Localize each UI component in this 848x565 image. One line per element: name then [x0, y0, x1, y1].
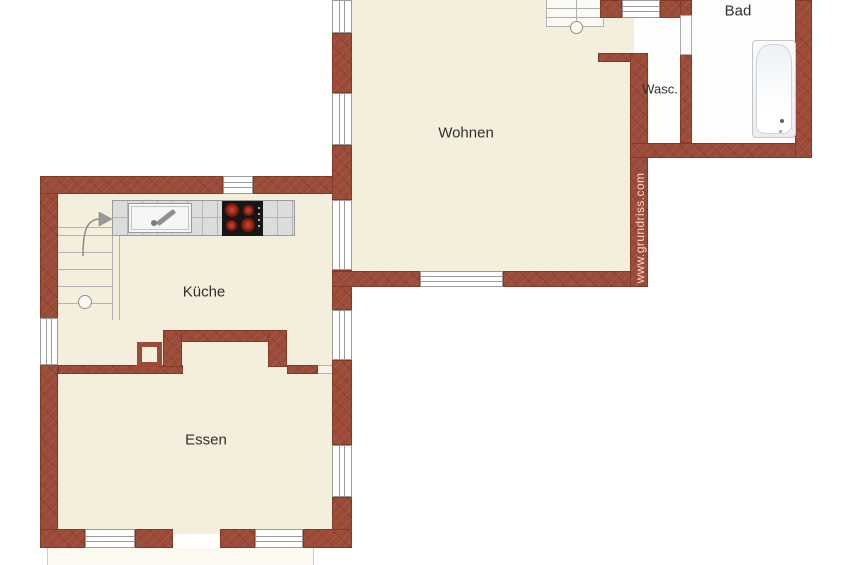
window-spine-1	[332, 0, 352, 33]
cooktop-knob	[258, 213, 260, 215]
wall-south-1	[40, 529, 85, 548]
window-top-landing	[622, 0, 660, 18]
wall-kueche-top-left	[40, 176, 223, 194]
wall-essen-top-right	[287, 365, 318, 374]
floor-plan: Wohnen Küche Essen Bad Wasc. www.grundri…	[0, 0, 848, 565]
bathtub-drain	[780, 119, 784, 123]
wall-spine-4	[332, 360, 352, 445]
wall-wohnen-bottom-left	[332, 271, 420, 287]
watermark-text: www.grundriss.com	[633, 173, 647, 284]
room-label-wasc: Wasc.	[642, 83, 678, 96]
window-wohnen-bottom	[420, 271, 503, 287]
terrace-outline	[47, 548, 314, 565]
main-staircase-post	[570, 21, 583, 34]
wall-south-4	[303, 529, 352, 548]
room-label-essen: Essen	[185, 433, 227, 448]
wall-spine-1	[332, 33, 352, 93]
window-spine-3	[332, 200, 352, 270]
kitchen-sink	[128, 203, 192, 233]
room-label-wohnen: Wohnen	[438, 126, 494, 141]
cooktop-knob	[258, 207, 260, 209]
burner	[226, 220, 237, 231]
wall-spine-2	[332, 145, 352, 200]
door-panel-bad	[680, 15, 692, 55]
faucet-base	[151, 220, 157, 226]
window-spine-4	[332, 310, 352, 360]
cooktop-knob	[258, 225, 260, 227]
faucet-icon	[156, 209, 176, 226]
wall-alcove-right	[268, 330, 287, 367]
room-label-kueche: Küche	[183, 285, 226, 300]
room-label-bad: Bad	[725, 4, 752, 19]
window-spine-5	[332, 445, 352, 497]
window-spine-2	[332, 93, 352, 145]
window-south-1	[85, 529, 135, 548]
burner	[225, 203, 239, 217]
bathtub	[752, 40, 796, 138]
cooktop	[222, 201, 263, 236]
burner	[241, 218, 255, 232]
wall-south-2	[135, 529, 173, 548]
wall-wasc-top	[598, 53, 634, 62]
window-kueche-top	[223, 176, 253, 194]
chimney	[137, 342, 162, 367]
burner	[243, 205, 254, 216]
wall-bad-bottom	[630, 143, 812, 158]
cooktop-knob	[258, 219, 260, 221]
door-opening-essen	[318, 365, 332, 374]
wall-east-outer	[795, 0, 812, 158]
bathtub-overflow	[779, 130, 782, 133]
window-south-2	[255, 529, 303, 548]
wall-top-a	[600, 0, 622, 18]
wall-wohnen-bottom-right	[503, 271, 648, 287]
stair-direction-arrow-icon	[76, 206, 114, 258]
wall-south-3	[220, 529, 255, 548]
kitchen-staircase-post	[78, 295, 92, 309]
wall-alcove-left	[163, 330, 182, 367]
wall-spine-5	[332, 497, 352, 530]
window-west-wall	[40, 318, 58, 365]
